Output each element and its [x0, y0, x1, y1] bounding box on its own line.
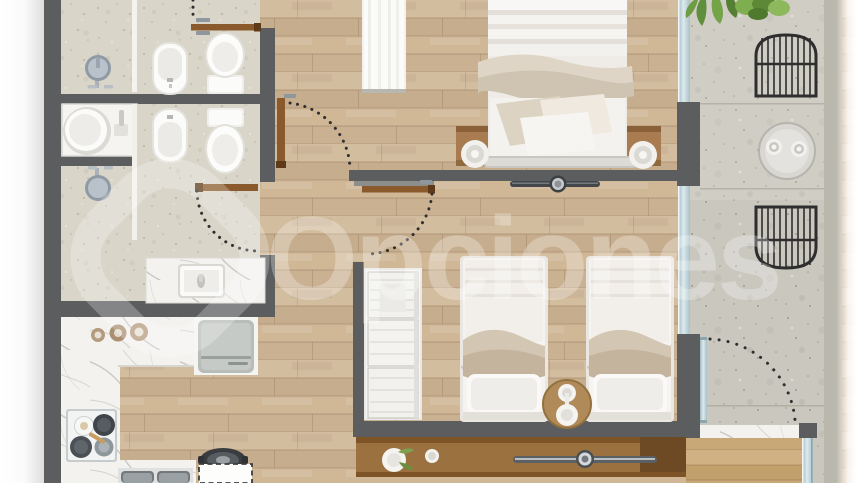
svg-text:Opciones: Opciones [266, 193, 780, 325]
